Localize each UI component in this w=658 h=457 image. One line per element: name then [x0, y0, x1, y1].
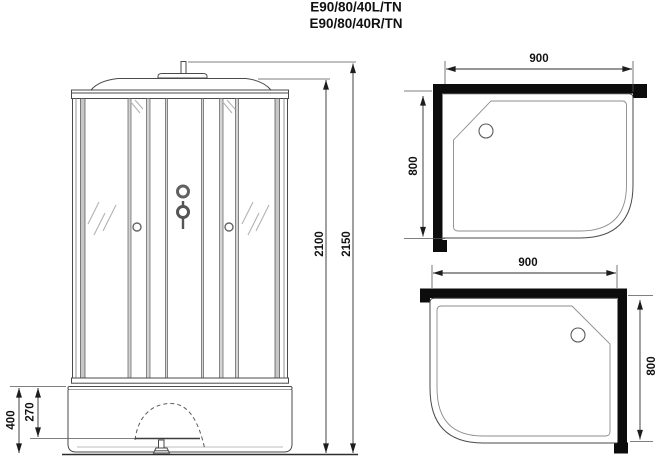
control-knob-upper: [178, 186, 189, 197]
dim-width: 900: [433, 257, 616, 273]
tray-plan-view-left-version: 900 800: [404, 53, 647, 252]
mixer-lever: [178, 201, 189, 229]
shower-cabin-front-view: 400 270 2100 2150: [6, 62, 359, 455]
dim-label: 400: [6, 410, 18, 429]
dim-apron-height: 270: [25, 388, 39, 437]
dim-label: 2100: [314, 231, 326, 257]
dome-cap: [158, 74, 207, 79]
bottom-rail: [72, 378, 289, 383]
left-frame-post: [73, 99, 86, 379]
center-panel-edge-left: [166, 99, 168, 379]
wall-side-end-block: [614, 443, 628, 454]
dim-label: 800: [646, 356, 658, 375]
door-stile-right: [220, 99, 224, 379]
dim-depth: 800: [640, 300, 658, 440]
dim-cabin-height: 2100: [314, 80, 326, 453]
door-handle-right: [225, 223, 233, 231]
tray-inner-outline: [437, 306, 610, 436]
drain-hole: [571, 328, 585, 342]
tray-apron: [68, 390, 292, 452]
wall-top: [427, 289, 618, 299]
dim-overall-height: 2150: [341, 64, 353, 454]
tray-plan-view-right-version: 900 800: [420, 257, 658, 454]
dim-tray-height: 400: [6, 388, 20, 453]
right-frame-post: [275, 99, 288, 379]
model-code-left: E90/80/40L/TN: [310, 0, 402, 15]
shower-cabin-dimension-drawing: E90/80/40L/TN E90/80/40R/TN: [0, 0, 658, 457]
dome-roof: [91, 79, 271, 91]
tray-outer-outline: [443, 94, 633, 238]
title-block: E90/80/40L/TN E90/80/40R/TN: [309, 0, 402, 31]
drain-hole: [479, 124, 493, 138]
dim-width: 900: [446, 53, 632, 69]
wall-side-right: [618, 289, 628, 443]
door-stile-left: [147, 99, 151, 379]
glass-mullion: [128, 99, 131, 379]
glass-mullion: [236, 99, 239, 379]
dim-depth: 800: [408, 96, 423, 237]
center-panel-edge-right: [202, 99, 204, 379]
drawing-svg: E90/80/40L/TN E90/80/40R/TN: [0, 0, 658, 457]
dim-label: 800: [408, 156, 420, 175]
dim-label: 270: [25, 402, 37, 421]
door-handle-left: [133, 223, 141, 231]
tray-outer-outline: [430, 298, 617, 443]
dim-label: 2150: [341, 231, 353, 257]
wall-side-end-block: [433, 240, 447, 252]
wall-side-left: [433, 84, 443, 240]
tray-top-lip: [68, 387, 292, 391]
tray-inner-outline: [454, 101, 627, 231]
dim-label: 900: [529, 53, 548, 65]
wall-top-end-block: [633, 84, 647, 98]
model-code-right: E90/80/40R/TN: [309, 16, 402, 31]
wall-top-end-block: [420, 289, 430, 303]
dim-label: 900: [518, 257, 537, 269]
vent-pipe: [181, 62, 186, 74]
top-frame: [72, 90, 289, 99]
wall-top: [435, 84, 633, 94]
